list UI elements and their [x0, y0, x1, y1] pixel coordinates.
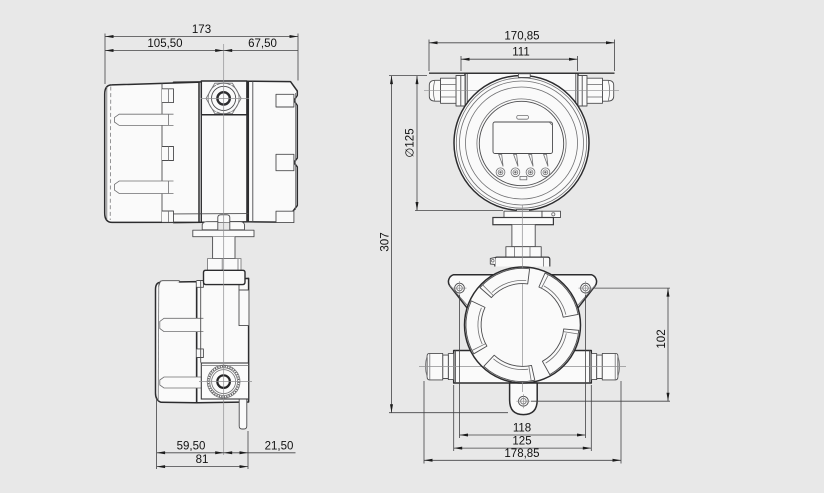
svg-text:173: 173 [192, 24, 211, 36]
svg-text:118: 118 [513, 423, 531, 435]
svg-text:125: 125 [512, 436, 531, 448]
svg-text:21,50: 21,50 [265, 440, 294, 452]
svg-text:111: 111 [512, 47, 529, 59]
svg-text:∅125: ∅125 [405, 128, 417, 157]
svg-text:178,85: 178,85 [504, 448, 539, 460]
svg-text:105,50: 105,50 [147, 38, 182, 50]
svg-text:59,50: 59,50 [177, 440, 206, 452]
svg-text:170,85: 170,85 [504, 30, 539, 42]
svg-text:67,50: 67,50 [248, 38, 277, 50]
svg-text:307: 307 [380, 232, 392, 251]
svg-text:81: 81 [196, 454, 209, 466]
svg-text:102: 102 [656, 329, 668, 348]
